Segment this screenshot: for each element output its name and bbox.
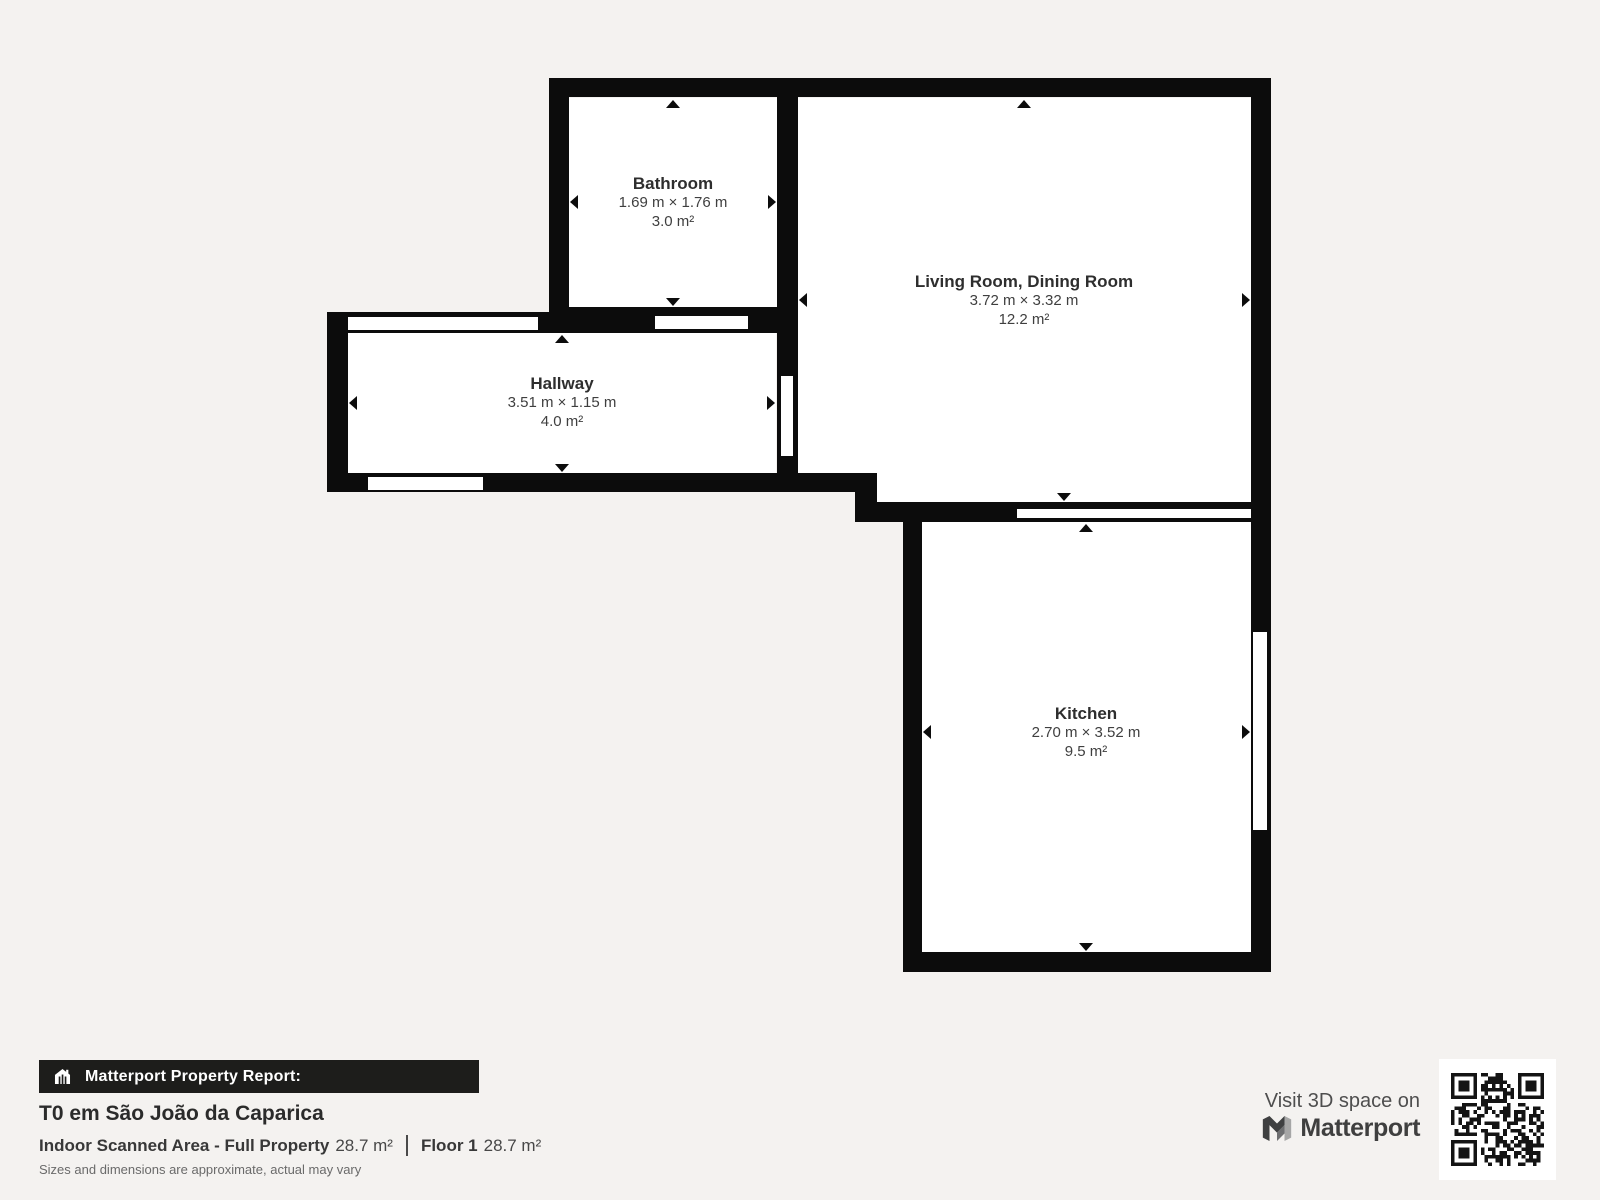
floor-value: 28.7 m²: [484, 1136, 542, 1156]
dimension-arrow-right: [767, 396, 775, 410]
dimension-arrow-left: [923, 725, 931, 739]
room-area: 12.2 m²: [874, 310, 1174, 329]
dimension-arrow-up: [555, 335, 569, 343]
door-opening-hallway-bottom: [368, 477, 483, 490]
visit-3d-space-text: Visit 3D space on: [1265, 1090, 1420, 1113]
wall-right: [1251, 78, 1271, 972]
opening-living-kitchen: [1017, 509, 1251, 518]
report-title: T0 em São João da Caparica: [39, 1102, 324, 1126]
room-label-kitchen: Kitchen 2.70 m × 3.52 m 9.5 m²: [936, 704, 1236, 761]
room-dimensions: 3.51 m × 1.15 m: [412, 393, 712, 412]
room-area: 9.5 m²: [936, 742, 1236, 761]
room-area: 3.0 m²: [523, 212, 823, 231]
room-label-living-dining: Living Room, Dining Room 3.72 m × 3.32 m…: [874, 272, 1174, 329]
room-name: Kitchen: [936, 704, 1236, 723]
wall-kitchen-bottom: [903, 952, 1271, 972]
indoor-area-label: Indoor Scanned Area - Full Property: [39, 1136, 329, 1156]
wall-kitchen-left: [903, 502, 922, 972]
door-opening-hallway-top: [348, 317, 538, 330]
dimension-arrow-up: [1017, 100, 1031, 108]
dimension-arrow-right: [1242, 725, 1250, 739]
meta-separator: [406, 1135, 408, 1156]
report-disclaimer: Sizes and dimensions are approximate, ac…: [39, 1162, 361, 1177]
window-opening-kitchen: [1253, 632, 1267, 830]
dimension-arrow-down: [1079, 943, 1093, 951]
dimension-arrow-up: [1079, 524, 1093, 532]
indoor-area-value: 28.7 m²: [335, 1136, 393, 1156]
matterport-brand: Matterport: [1262, 1114, 1420, 1143]
matterport-wordmark: Matterport: [1300, 1114, 1420, 1143]
dimension-arrow-down: [555, 464, 569, 472]
dimension-arrow-right: [1242, 293, 1250, 307]
room-name: Bathroom: [523, 174, 823, 193]
door-opening-living: [781, 376, 793, 456]
dimension-arrow-left: [349, 396, 357, 410]
qr-code: [1439, 1059, 1556, 1180]
room-dimensions: 1.69 m × 1.76 m: [523, 193, 823, 212]
room-dimensions: 3.72 m × 3.32 m: [874, 291, 1174, 310]
house-icon: [53, 1067, 72, 1086]
dimension-arrow-left: [799, 293, 807, 307]
room-name: Hallway: [412, 374, 712, 393]
floor-label: Floor 1: [421, 1136, 478, 1156]
report-bar: Matterport Property Report:: [39, 1060, 479, 1093]
room-dimensions: 2.70 m × 3.52 m: [936, 723, 1236, 742]
dimension-arrow-up: [666, 100, 680, 108]
wall-hallway-left: [327, 312, 348, 492]
room-label-hallway: Hallway 3.51 m × 1.15 m 4.0 m²: [412, 374, 712, 431]
room-area: 4.0 m²: [412, 412, 712, 431]
wall-top: [549, 78, 1271, 97]
report-meta: Indoor Scanned Area - Full Property 28.7…: [39, 1135, 541, 1156]
room-label-bathroom: Bathroom 1.69 m × 1.76 m 3.0 m²: [523, 174, 823, 231]
property-report-page: Bathroom 1.69 m × 1.76 m 3.0 m² Living R…: [0, 0, 1600, 1200]
report-bar-label: Matterport Property Report:: [85, 1068, 301, 1086]
door-opening-bathroom: [655, 316, 748, 329]
dimension-arrow-down: [666, 298, 680, 306]
room-name: Living Room, Dining Room: [874, 272, 1174, 291]
matterport-logo-icon: [1262, 1115, 1292, 1142]
wall-step: [855, 473, 877, 522]
dimension-arrow-down: [1057, 493, 1071, 501]
